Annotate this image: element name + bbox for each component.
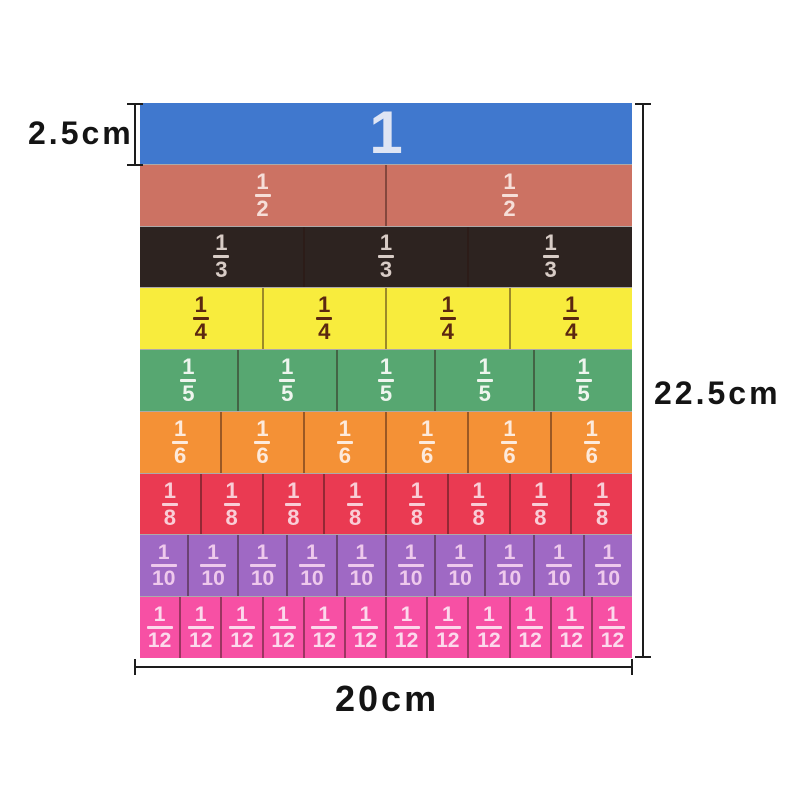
fraction-denominator: 10 — [201, 570, 224, 587]
fraction-label: 112 — [229, 606, 255, 649]
fraction-numerator: 1 — [182, 358, 194, 376]
fraction-denominator: 5 — [479, 385, 491, 403]
fraction-tile-1-8: 18 — [200, 474, 262, 535]
fraction-tile-whole: 1 — [140, 103, 632, 164]
fraction-denominator: 10 — [251, 570, 274, 587]
fraction-numerator: 1 — [281, 358, 293, 376]
fraction-label: 110 — [348, 544, 374, 587]
fraction-numerator: 1 — [534, 482, 546, 500]
fraction-tile-1-6: 16 — [303, 412, 385, 473]
fraction-tile-1-10: 110 — [187, 535, 236, 596]
fraction-numerator: 1 — [380, 358, 392, 376]
fraction-numerator: 1 — [504, 544, 516, 561]
fraction-denominator: 8 — [473, 509, 485, 527]
fraction-label: 112 — [270, 606, 296, 649]
fraction-tile-1-12: 112 — [220, 597, 261, 658]
fraction-label: 15 — [180, 358, 196, 403]
fraction-numerator: 1 — [545, 234, 557, 252]
bracket-line — [134, 666, 633, 668]
fraction-label: 110 — [447, 544, 473, 587]
fraction-tile-1-6: 16 — [385, 412, 467, 473]
fraction-tile-1-5: 15 — [237, 350, 336, 411]
fraction-label: 110 — [546, 544, 572, 587]
fraction-tile-1-12: 112 — [591, 597, 632, 658]
fraction-label: 18 — [409, 482, 425, 527]
fraction-denominator: 8 — [349, 509, 361, 527]
fraction-denominator: 12 — [601, 632, 624, 649]
fraction-numerator: 1 — [287, 482, 299, 500]
fraction-tile-1-12: 112 — [385, 597, 426, 658]
fraction-row-8: 1818181818181818 — [140, 473, 632, 535]
fraction-label: 110 — [595, 544, 621, 587]
fraction-label: 18 — [347, 482, 363, 527]
fraction-denominator: 12 — [477, 632, 500, 649]
fraction-row-6: 161616161616 — [140, 411, 632, 473]
fraction-tile-1-10: 110 — [533, 535, 582, 596]
fraction-denominator: 10 — [547, 570, 570, 587]
fraction-label: 16 — [419, 420, 435, 465]
fraction-numerator: 1 — [174, 420, 186, 438]
fraction-label: 18 — [224, 482, 240, 527]
fraction-tile-1-4: 14 — [262, 288, 386, 349]
fraction-tile-1-12: 112 — [262, 597, 303, 658]
fraction-numerator: 1 — [401, 606, 413, 623]
fraction-numerator: 1 — [164, 482, 176, 500]
fraction-tile-1-6: 16 — [550, 412, 632, 473]
fraction-numerator: 1 — [355, 544, 367, 561]
whole-number-label: 1 — [369, 106, 402, 160]
fraction-numerator: 1 — [524, 606, 536, 623]
fraction-denominator: 10 — [498, 570, 521, 587]
fraction-tile-1-8: 18 — [262, 474, 324, 535]
fraction-label: 112 — [311, 606, 337, 649]
bracket-line — [134, 103, 136, 166]
fraction-numerator: 1 — [226, 482, 238, 500]
fraction-numerator: 1 — [256, 420, 268, 438]
fraction-label: 16 — [254, 420, 270, 465]
fraction-denominator: 3 — [380, 261, 392, 279]
fraction-denominator: 12 — [518, 632, 541, 649]
fraction-denominator: 6 — [503, 447, 515, 465]
fraction-numerator: 1 — [553, 544, 565, 561]
fraction-label: 112 — [435, 606, 461, 649]
total-width-label: 20cm — [335, 681, 439, 717]
total-height-label: 22.5cm — [654, 377, 781, 409]
fraction-row-4: 14141414 — [140, 287, 632, 349]
fraction-numerator: 1 — [349, 482, 361, 500]
fraction-denominator: 6 — [586, 447, 598, 465]
fraction-tile-1-6: 16 — [467, 412, 549, 473]
fraction-label: 18 — [285, 482, 301, 527]
fraction-numerator: 1 — [154, 606, 166, 623]
fraction-tile-1-3: 13 — [140, 227, 303, 288]
tile-height-label: 2.5cm — [28, 117, 134, 149]
fraction-denominator: 4 — [195, 323, 207, 341]
fraction-denominator: 12 — [148, 632, 171, 649]
fraction-numerator: 1 — [277, 606, 289, 623]
fraction-tile-1-12: 112 — [140, 597, 179, 658]
fraction-denominator: 6 — [256, 447, 268, 465]
total-height-bracket — [635, 103, 651, 658]
fraction-numerator: 1 — [442, 606, 454, 623]
fraction-denominator: 4 — [318, 323, 330, 341]
fraction-tile-1-12: 112 — [550, 597, 591, 658]
fraction-denominator: 8 — [226, 509, 238, 527]
fraction-label: 112 — [558, 606, 584, 649]
fraction-numerator: 1 — [596, 482, 608, 500]
fraction-numerator: 1 — [195, 606, 207, 623]
fraction-denominator: 4 — [442, 323, 454, 341]
fraction-denominator: 8 — [287, 509, 299, 527]
fraction-denominator: 10 — [597, 570, 620, 587]
fraction-denominator: 10 — [448, 570, 471, 587]
fraction-denominator: 10 — [300, 570, 323, 587]
fraction-numerator: 1 — [565, 606, 577, 623]
fraction-numerator: 1 — [339, 420, 351, 438]
fraction-label: 15 — [576, 358, 592, 403]
fraction-numerator: 1 — [503, 420, 515, 438]
fraction-numerator: 1 — [479, 358, 491, 376]
fraction-denominator: 2 — [503, 200, 515, 218]
fraction-tile-1-8: 18 — [323, 474, 385, 535]
fraction-tile-1-10: 110 — [385, 535, 434, 596]
fraction-tiles-diagram: 1121213131314141414151515151516161616161… — [0, 0, 800, 800]
fraction-label: 112 — [394, 606, 420, 649]
bracket-tick — [631, 659, 633, 675]
fraction-denominator: 12 — [395, 632, 418, 649]
fraction-numerator: 1 — [360, 606, 372, 623]
fraction-label: 13 — [213, 234, 229, 279]
fraction-denominator: 12 — [354, 632, 377, 649]
fraction-numerator: 1 — [380, 234, 392, 252]
fraction-label: 15 — [378, 358, 394, 403]
total-width-bracket — [134, 659, 633, 675]
fraction-numerator: 1 — [405, 544, 417, 561]
fraction-label: 14 — [440, 296, 456, 341]
fraction-row-whole: 1 — [140, 103, 632, 164]
fraction-label: 16 — [584, 420, 600, 465]
fraction-label: 16 — [337, 420, 353, 465]
fraction-label: 110 — [151, 544, 177, 587]
bracket-line — [642, 103, 644, 658]
fraction-label: 112 — [476, 606, 502, 649]
fraction-label: 110 — [497, 544, 523, 587]
fraction-tile-1-4: 14 — [509, 288, 633, 349]
fraction-tile-1-5: 15 — [434, 350, 533, 411]
fraction-label: 18 — [471, 482, 487, 527]
fraction-tile-1-8: 18 — [447, 474, 509, 535]
fraction-tile-1-10: 110 — [434, 535, 483, 596]
fraction-label: 13 — [543, 234, 559, 279]
fraction-numerator: 1 — [158, 544, 170, 561]
fraction-numerator: 1 — [306, 544, 318, 561]
fraction-tile-1-12: 112 — [467, 597, 508, 658]
fraction-tile-1-10: 110 — [237, 535, 286, 596]
fraction-label: 13 — [378, 234, 394, 279]
fraction-label: 18 — [532, 482, 548, 527]
bracket-tick — [127, 164, 143, 166]
fraction-label: 14 — [193, 296, 209, 341]
fraction-numerator: 1 — [577, 358, 589, 376]
fraction-denominator: 12 — [560, 632, 583, 649]
fraction-tile-1-6: 16 — [220, 412, 302, 473]
fraction-label: 15 — [477, 358, 493, 403]
fraction-denominator: 8 — [164, 509, 176, 527]
fraction-tile-1-10: 110 — [583, 535, 632, 596]
fraction-numerator: 1 — [483, 606, 495, 623]
fraction-denominator: 8 — [596, 509, 608, 527]
fraction-tile-1-4: 14 — [140, 288, 262, 349]
fraction-bars: 1121213131314141414151515151516161616161… — [140, 103, 632, 658]
fraction-label: 18 — [594, 482, 610, 527]
fraction-tile-1-6: 16 — [140, 412, 220, 473]
fraction-tile-1-5: 15 — [140, 350, 237, 411]
fraction-tile-1-10: 110 — [336, 535, 385, 596]
fraction-label: 18 — [162, 482, 178, 527]
fraction-numerator: 1 — [195, 296, 207, 314]
fraction-denominator: 8 — [534, 509, 546, 527]
fraction-tile-1-5: 15 — [533, 350, 632, 411]
fraction-numerator: 1 — [565, 296, 577, 314]
fraction-denominator: 12 — [313, 632, 336, 649]
fraction-numerator: 1 — [256, 173, 268, 191]
fraction-denominator: 3 — [215, 261, 227, 279]
fraction-row-2: 1212 — [140, 164, 632, 226]
fraction-numerator: 1 — [236, 606, 248, 623]
fraction-denominator: 6 — [339, 447, 351, 465]
fraction-tile-1-4: 14 — [385, 288, 509, 349]
fraction-tile-1-8: 18 — [140, 474, 200, 535]
fraction-tile-1-12: 112 — [303, 597, 344, 658]
fraction-denominator: 6 — [174, 447, 186, 465]
fraction-tile-1-12: 112 — [179, 597, 220, 658]
fraction-label: 112 — [147, 606, 173, 649]
fraction-label: 12 — [502, 173, 518, 218]
fraction-denominator: 12 — [230, 632, 253, 649]
fraction-numerator: 1 — [421, 420, 433, 438]
fraction-tile-1-12: 112 — [509, 597, 550, 658]
fraction-label: 110 — [299, 544, 325, 587]
fraction-denominator: 3 — [545, 261, 557, 279]
fraction-tile-1-8: 18 — [570, 474, 632, 535]
fraction-tile-1-10: 110 — [484, 535, 533, 596]
fraction-numerator: 1 — [257, 544, 269, 561]
fraction-denominator: 5 — [577, 385, 589, 403]
fraction-denominator: 2 — [256, 200, 268, 218]
fraction-row-3: 131313 — [140, 226, 632, 288]
fraction-denominator: 5 — [281, 385, 293, 403]
fraction-label: 16 — [501, 420, 517, 465]
fraction-label: 15 — [279, 358, 295, 403]
fraction-label: 110 — [250, 544, 276, 587]
fraction-label: 12 — [255, 173, 271, 218]
fraction-row-12: 112112112112112112112112112112112112 — [140, 596, 632, 658]
fraction-numerator: 1 — [215, 234, 227, 252]
fraction-denominator: 8 — [411, 509, 423, 527]
fraction-tile-1-8: 18 — [509, 474, 571, 535]
fraction-numerator: 1 — [473, 482, 485, 500]
bracket-tick — [635, 656, 651, 658]
fraction-label: 112 — [517, 606, 543, 649]
fraction-denominator: 6 — [421, 447, 433, 465]
fraction-denominator: 4 — [565, 323, 577, 341]
fraction-label: 14 — [316, 296, 332, 341]
fraction-label: 14 — [563, 296, 579, 341]
fraction-row-10: 110110110110110110110110110110 — [140, 534, 632, 596]
fraction-denominator: 10 — [350, 570, 373, 587]
fraction-label: 16 — [172, 420, 188, 465]
fraction-label: 110 — [200, 544, 226, 587]
fraction-row-5: 1515151515 — [140, 349, 632, 411]
fraction-denominator: 10 — [399, 570, 422, 587]
fraction-numerator: 1 — [442, 296, 454, 314]
fraction-denominator: 5 — [182, 385, 194, 403]
fraction-label: 112 — [599, 606, 625, 649]
fraction-denominator: 12 — [271, 632, 294, 649]
fraction-numerator: 1 — [586, 420, 598, 438]
fraction-tile-1-8: 18 — [385, 474, 447, 535]
fraction-numerator: 1 — [603, 544, 615, 561]
fraction-numerator: 1 — [318, 606, 330, 623]
fraction-denominator: 5 — [380, 385, 392, 403]
fraction-tile-1-3: 13 — [303, 227, 468, 288]
fraction-denominator: 10 — [152, 570, 175, 587]
fraction-tile-1-2: 12 — [140, 165, 385, 226]
fraction-numerator: 1 — [207, 544, 219, 561]
fraction-denominator: 12 — [436, 632, 459, 649]
fraction-tile-1-5: 15 — [336, 350, 435, 411]
fraction-tile-1-2: 12 — [385, 165, 632, 226]
fraction-numerator: 1 — [318, 296, 330, 314]
fraction-numerator: 1 — [411, 482, 423, 500]
fraction-label: 110 — [398, 544, 424, 587]
fraction-tile-1-12: 112 — [426, 597, 467, 658]
fraction-tile-1-12: 112 — [344, 597, 385, 658]
fraction-numerator: 1 — [454, 544, 466, 561]
fraction-denominator: 12 — [189, 632, 212, 649]
fraction-tile-1-3: 13 — [467, 227, 632, 288]
fraction-numerator: 1 — [503, 173, 515, 191]
fraction-numerator: 1 — [607, 606, 619, 623]
fraction-tile-1-10: 110 — [140, 535, 187, 596]
fraction-label: 112 — [188, 606, 214, 649]
fraction-label: 112 — [352, 606, 378, 649]
fraction-tile-1-10: 110 — [286, 535, 335, 596]
